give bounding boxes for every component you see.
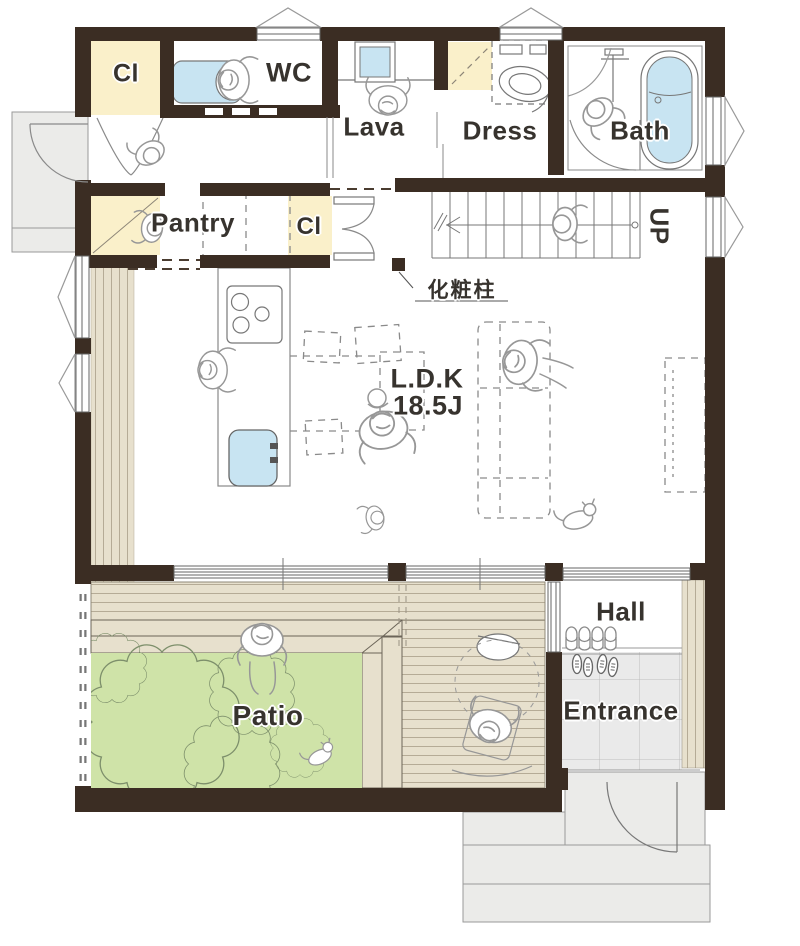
stairs-icon bbox=[432, 192, 640, 258]
label-hall: Hall bbox=[596, 597, 646, 628]
dog-icon bbox=[553, 499, 600, 534]
kitchen-island bbox=[218, 268, 290, 486]
kitchen-sink-icon bbox=[229, 430, 278, 486]
wood-strip-entrance bbox=[682, 580, 705, 768]
person-on-toilet bbox=[218, 57, 257, 103]
shower-icon bbox=[568, 48, 629, 102]
floor-plan: Cl WC Lava Dress Bath Pantry Cl 化粧柱 L.D.… bbox=[0, 0, 800, 946]
label-bath: Bath bbox=[610, 116, 670, 147]
label-entrance: Entrance bbox=[563, 696, 678, 727]
dress-closet-floor bbox=[447, 42, 495, 90]
wall-vents bbox=[205, 108, 277, 115]
wood-strip-left bbox=[91, 258, 134, 582]
person-at-basin bbox=[366, 78, 410, 115]
label-closet-mid: Cl bbox=[297, 213, 322, 241]
deck-upper bbox=[91, 582, 545, 620]
label-closet-top: Cl bbox=[113, 60, 139, 89]
label-pillar-note: 化粧柱 bbox=[428, 274, 497, 304]
wash-basin-icon bbox=[330, 42, 434, 82]
person-on-sofa bbox=[499, 334, 573, 392]
label-pantry: Pantry bbox=[151, 208, 235, 239]
patio-lawn bbox=[91, 653, 362, 788]
tv-board-icon bbox=[665, 358, 705, 492]
label-patio: Patio bbox=[233, 700, 304, 732]
label-ldk-size: 18.5J bbox=[393, 391, 463, 422]
person-on-stairs bbox=[553, 205, 587, 243]
person-at-curtain bbox=[125, 127, 170, 171]
child-playing bbox=[357, 503, 386, 534]
label-stairs-up: UP bbox=[644, 207, 675, 244]
label-dress: Dress bbox=[463, 116, 538, 147]
label-wc: WC bbox=[266, 58, 312, 89]
decorative-pillar bbox=[392, 258, 405, 271]
closet-double-doors bbox=[334, 197, 374, 260]
label-lava: Lava bbox=[343, 112, 404, 143]
